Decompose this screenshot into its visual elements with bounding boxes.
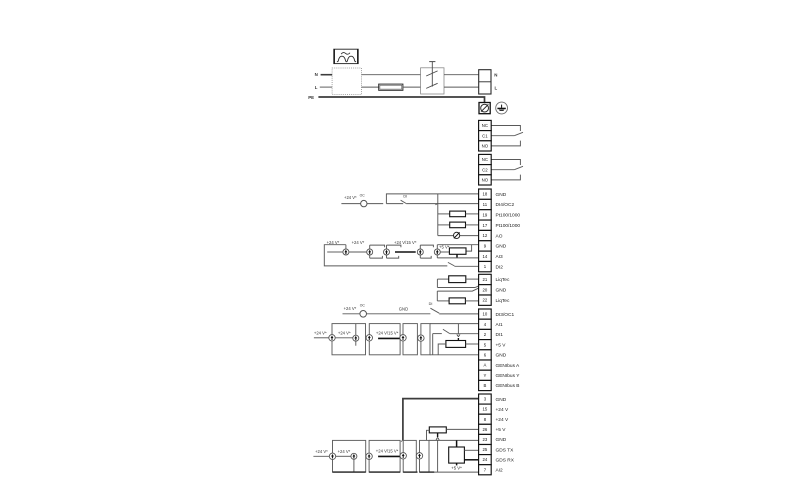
svg-text:GENIbus B: GENIbus B [496, 383, 520, 389]
svg-text:C1: C1 [482, 133, 488, 138]
svg-text:GENIbus A: GENIbus A [496, 363, 521, 369]
svg-text:14: 14 [483, 254, 488, 259]
svg-text:+24 V*: +24 V* [352, 240, 365, 245]
svg-text:10: 10 [483, 312, 488, 317]
svg-text:GND: GND [496, 397, 507, 403]
svg-text:25: 25 [483, 447, 488, 452]
svg-text:GDS RX: GDS RX [496, 457, 515, 463]
svg-text:OC: OC [360, 304, 366, 308]
svg-text:23: 23 [483, 437, 488, 442]
svg-text:AO: AO [496, 233, 503, 239]
svg-text:DI: DI [429, 302, 433, 306]
svg-text:L: L [315, 85, 318, 90]
svg-text:N: N [315, 72, 318, 77]
svg-text:AI2: AI2 [496, 467, 504, 473]
svg-text:+5 V: +5 V [496, 427, 507, 433]
svg-text:+24 V/15 V*: +24 V/15 V* [376, 449, 399, 454]
svg-text:GENIbus Y: GENIbus Y [496, 373, 521, 379]
svg-text:+5 V: +5 V [496, 342, 507, 348]
svg-text:+24 V*: +24 V* [344, 195, 357, 200]
svg-text:22: 22 [483, 298, 488, 303]
svg-text:NO: NO [482, 177, 489, 182]
svg-text:GND: GND [496, 244, 507, 250]
svg-text:+5 V*: +5 V* [451, 465, 462, 470]
svg-text:L: L [495, 85, 498, 90]
svg-text:+24 V*: +24 V* [314, 330, 327, 335]
svg-text:21: 21 [483, 277, 488, 282]
svg-text:DI2: DI2 [496, 264, 504, 270]
svg-text:19: 19 [483, 212, 488, 217]
svg-text:+24 V*: +24 V* [315, 449, 328, 454]
svg-text:+24 V/15 V*: +24 V/15 V* [394, 240, 417, 245]
svg-text:N: N [494, 72, 497, 77]
svg-text:GDS TX: GDS TX [496, 447, 515, 453]
svg-text:26: 26 [483, 427, 488, 432]
svg-text:NC: NC [482, 157, 488, 162]
svg-text:18: 18 [483, 192, 488, 197]
svg-text:NO: NO [482, 143, 489, 148]
svg-text:GND: GND [399, 306, 408, 311]
svg-text:LiqTec: LiqTec [496, 298, 510, 304]
svg-text:12: 12 [483, 233, 488, 238]
svg-text:DI: DI [403, 194, 407, 198]
svg-text:+24 V*: +24 V* [344, 306, 357, 311]
svg-text:+5 V*: +5 V* [439, 245, 450, 250]
svg-text:Pt100/1000: Pt100/1000 [496, 223, 521, 229]
svg-text:AI1: AI1 [496, 322, 504, 328]
svg-text:PE: PE [308, 95, 314, 100]
svg-text:24: 24 [483, 457, 488, 462]
svg-text:DI1: DI1 [496, 332, 504, 338]
svg-text:15: 15 [483, 407, 488, 412]
svg-text:+24 V*: +24 V* [338, 330, 351, 335]
svg-text:+24 V*: +24 V* [327, 240, 340, 245]
svg-text:+24 V: +24 V [496, 407, 509, 413]
svg-text:DI3/OC1: DI3/OC1 [496, 312, 515, 318]
svg-text:+24 V/15 V*: +24 V/15 V* [376, 330, 399, 335]
svg-text:11: 11 [483, 202, 488, 207]
svg-text:A: A [483, 363, 486, 368]
svg-text:OC: OC [360, 194, 366, 198]
svg-text:AI3: AI3 [496, 254, 504, 260]
svg-text:C2: C2 [482, 167, 488, 172]
svg-text:Pt100/1000: Pt100/1000 [496, 213, 521, 219]
svg-text:GND: GND [496, 192, 507, 198]
svg-text:NC: NC [482, 123, 488, 128]
svg-text:GND: GND [496, 353, 507, 359]
svg-text:20: 20 [483, 287, 488, 292]
svg-text:GND: GND [496, 437, 507, 443]
svg-text:+24 V*: +24 V* [338, 449, 351, 454]
svg-text:+24 V: +24 V [496, 417, 509, 423]
svg-text:Y: Y [483, 373, 486, 378]
svg-text:LiqTec: LiqTec [496, 277, 510, 283]
svg-text:B: B [483, 383, 486, 388]
svg-text:17: 17 [483, 223, 488, 228]
svg-text:GND: GND [496, 288, 507, 294]
svg-text:DI4/OC2: DI4/OC2 [496, 202, 515, 208]
